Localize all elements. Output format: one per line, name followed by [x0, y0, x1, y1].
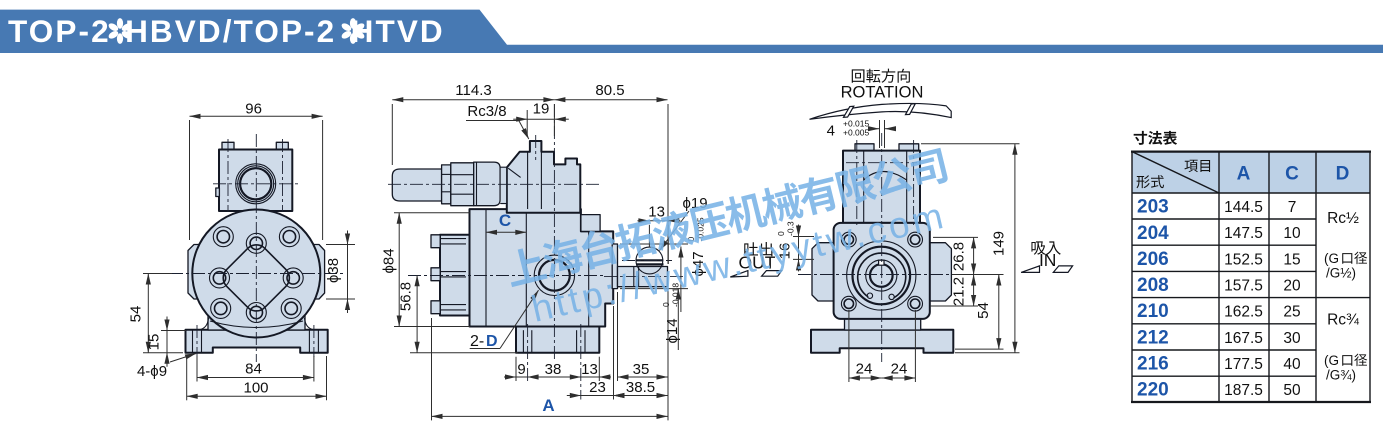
svg-text:203: 203	[1137, 197, 1169, 218]
svg-text:2-: 2-	[470, 333, 484, 350]
svg-text:187.5: 187.5	[1224, 382, 1263, 399]
svg-text:162.5: 162.5	[1224, 304, 1263, 321]
svg-text:Rc½: Rc½	[1327, 210, 1359, 227]
svg-text:+0.005: +0.005	[843, 128, 870, 138]
svg-text:35: 35	[633, 361, 650, 378]
svg-text:9: 9	[517, 361, 525, 378]
svg-text:220: 220	[1137, 380, 1169, 401]
svg-text:10: 10	[1283, 225, 1301, 242]
svg-text:157.5: 157.5	[1224, 277, 1263, 294]
svg-text:A: A	[1237, 164, 1251, 185]
svg-text:D: D	[1336, 164, 1350, 185]
svg-text:210: 210	[1137, 301, 1169, 322]
svg-text:204: 204	[1137, 223, 1169, 244]
svg-text:54: 54	[128, 306, 145, 323]
svg-text:19: 19	[533, 101, 550, 118]
svg-text:26.8: 26.8	[951, 242, 968, 271]
svg-text:A: A	[542, 396, 554, 415]
svg-text:152.5: 152.5	[1224, 251, 1263, 268]
svg-text:144.5: 144.5	[1224, 199, 1263, 216]
svg-text:(G: (G	[1324, 353, 1339, 368]
svg-text:ϕ38: ϕ38	[325, 258, 342, 283]
svg-text:114.3: 114.3	[455, 82, 491, 99]
svg-text:24: 24	[891, 361, 908, 378]
svg-text:84: 84	[245, 361, 262, 378]
svg-text:0: 0	[661, 302, 671, 307]
svg-text:80.5: 80.5	[595, 82, 624, 99]
svg-text:ϕ84: ϕ84	[381, 248, 398, 273]
svg-text:50: 50	[1283, 382, 1301, 399]
svg-text:Rc¾: Rc¾	[1327, 312, 1360, 329]
svg-text:23: 23	[589, 379, 606, 396]
svg-text:96: 96	[245, 101, 262, 118]
svg-text:D: D	[486, 333, 498, 350]
svg-text:ROTATION: ROTATION	[841, 84, 924, 102]
svg-text:149: 149	[991, 231, 1008, 256]
svg-text:21.2: 21.2	[951, 277, 968, 306]
svg-text:38: 38	[545, 361, 562, 378]
svg-text:206: 206	[1137, 249, 1169, 270]
svg-text:20: 20	[1283, 277, 1301, 294]
svg-text:100: 100	[243, 379, 268, 396]
svg-text:(G: (G	[1324, 251, 1339, 266]
svg-text:24: 24	[856, 361, 873, 378]
svg-text:13: 13	[581, 361, 598, 378]
svg-text:25: 25	[1283, 304, 1300, 321]
svg-text:147.5: 147.5	[1224, 225, 1263, 242]
svg-text:4-ϕ9: 4-ϕ9	[137, 363, 167, 380]
svg-text:15: 15	[146, 334, 163, 351]
svg-text:/G½): /G½)	[1326, 266, 1356, 281]
svg-text:TOP-2*HBVD/TOP-2*HTVD: TOP-2*HBVD/TOP-2*HTVD	[8, 13, 445, 49]
svg-text:IN: IN	[1039, 250, 1057, 270]
svg-text:216: 216	[1137, 354, 1169, 375]
svg-text:212: 212	[1137, 327, 1169, 348]
svg-text:38.5: 38.5	[626, 379, 655, 396]
svg-text:167.5: 167.5	[1224, 330, 1263, 347]
svg-text:C: C	[499, 211, 511, 230]
svg-text:56.8: 56.8	[398, 282, 415, 311]
svg-text:4: 4	[827, 123, 835, 140]
svg-text:C: C	[1285, 164, 1299, 185]
svg-text:/G¾): /G¾)	[1326, 368, 1356, 383]
svg-text:7: 7	[1288, 199, 1297, 216]
svg-text:208: 208	[1137, 275, 1169, 296]
svg-text:30: 30	[1283, 330, 1301, 347]
svg-text:Rc3/8: Rc3/8	[467, 103, 506, 120]
svg-text:177.5: 177.5	[1224, 356, 1263, 373]
svg-text:54: 54	[975, 302, 992, 319]
svg-text:40: 40	[1283, 356, 1301, 373]
svg-text:15: 15	[1283, 251, 1300, 268]
